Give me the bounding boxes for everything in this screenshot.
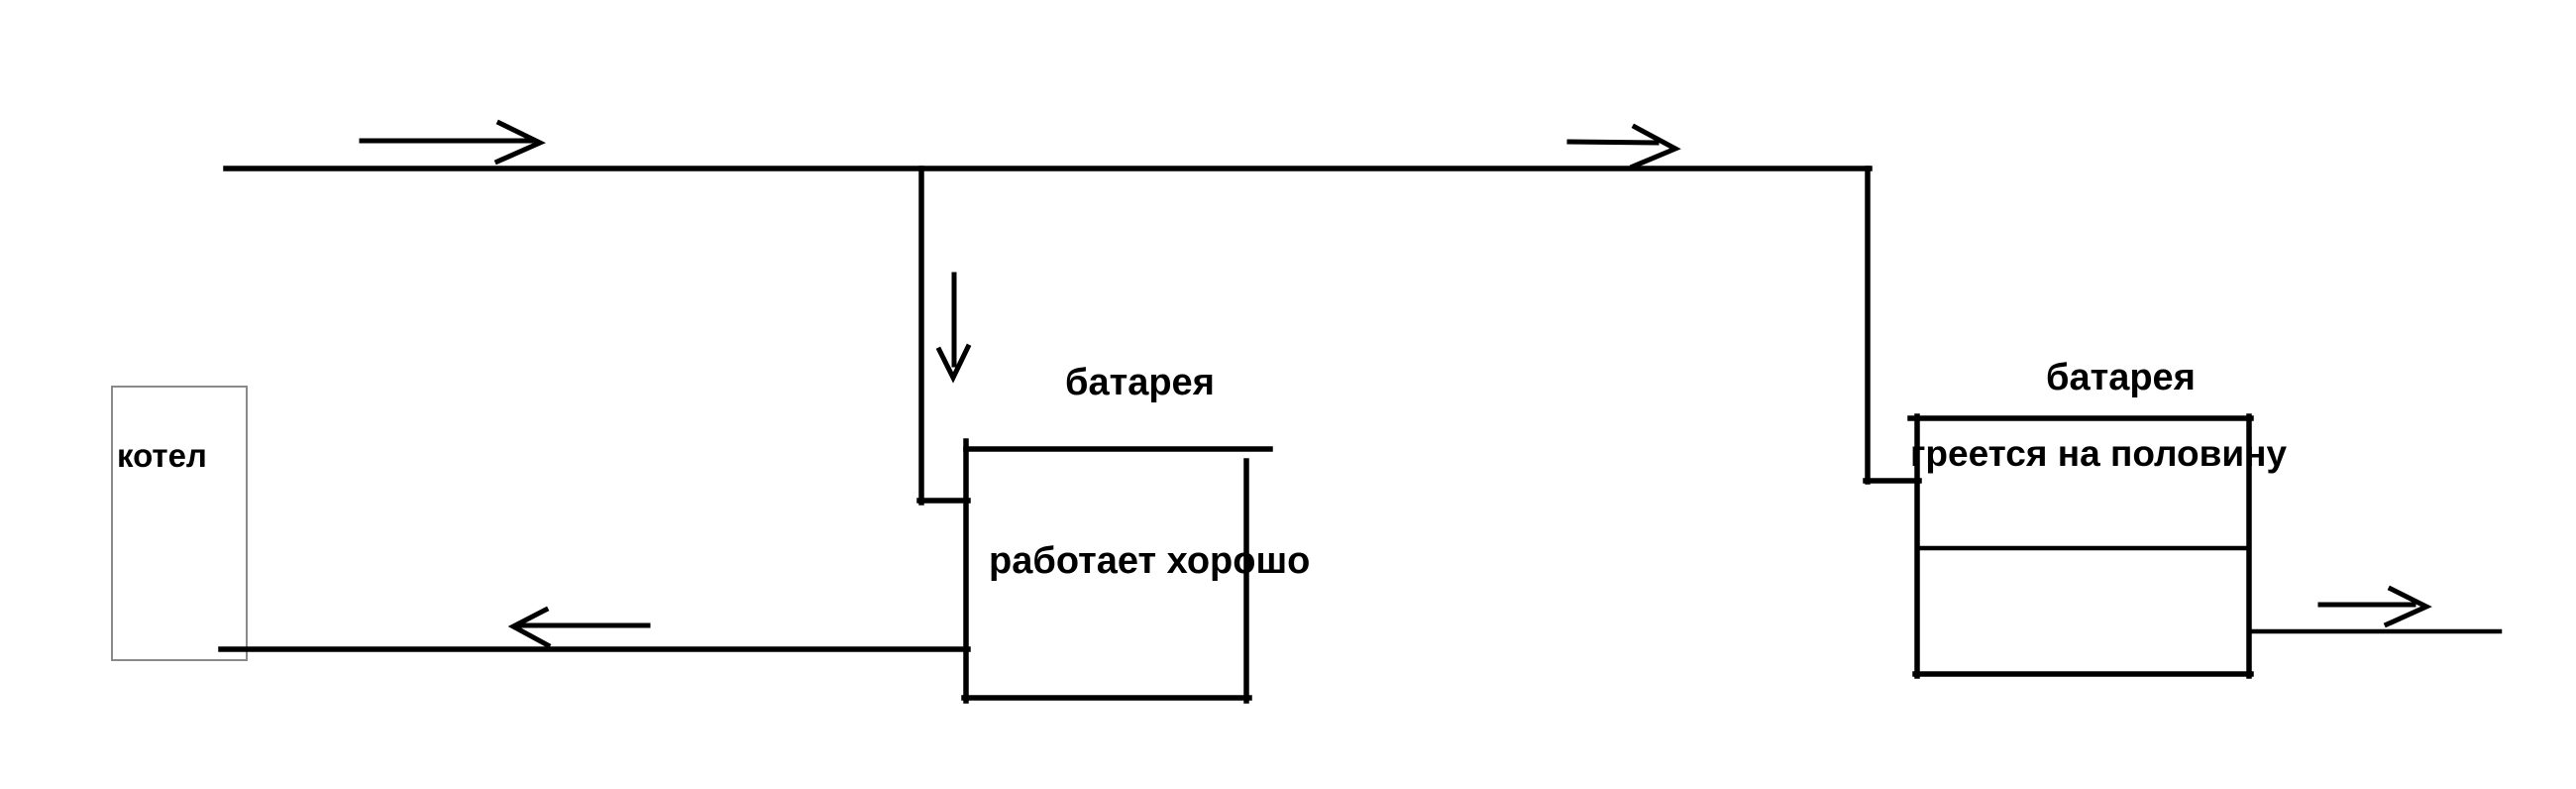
radiator1-note: работает хорошо [989, 540, 1310, 582]
flow-down-arrow-icon [939, 275, 968, 378]
boiler-label: котел [117, 437, 207, 474]
radiator2-note: греется на половину [1910, 433, 2287, 474]
flow-right-arrow-icon-2 [1569, 127, 1675, 167]
heating-schematic-diagram: котел батарея работает хорошо батарея [0, 0, 2576, 789]
radiator1-label: батарея [1065, 362, 1215, 403]
flow-right-arrow-icon-1 [362, 123, 540, 162]
flow-left-arrow-icon [513, 610, 648, 645]
radiator2-label: батарея [2046, 357, 2196, 398]
flow-right-arrow-icon-3 [2320, 589, 2426, 624]
boiler-box [112, 387, 247, 660]
